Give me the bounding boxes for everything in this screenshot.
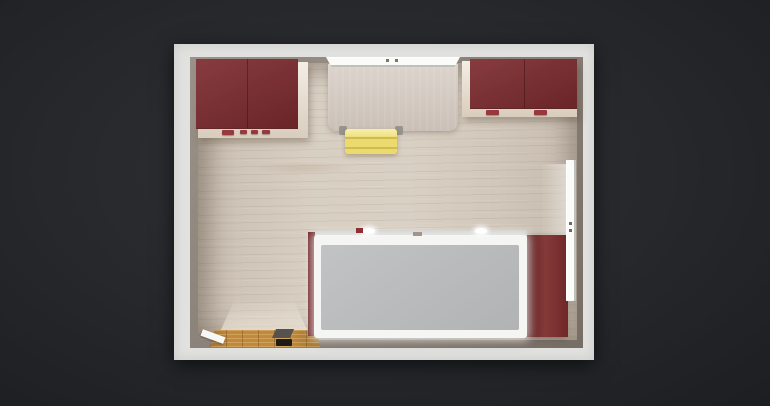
window-top[interactable] — [326, 57, 460, 67]
bed-accessory-small[interactable] — [413, 232, 422, 236]
cabinet-door-seam — [247, 59, 248, 128]
window-right[interactable] — [566, 160, 576, 301]
window-handle-icon — [386, 59, 389, 62]
bed-lamp-left[interactable] — [362, 228, 375, 234]
cabinet-handle[interactable] — [486, 110, 499, 115]
bed-accessory-red[interactable] — [356, 228, 363, 233]
wardrobe-bottom-right[interactable] — [527, 235, 568, 337]
cabinet-handle[interactable] — [251, 130, 258, 134]
bed-lamp-right[interactable] — [475, 228, 487, 234]
cabinet-handle[interactable] — [222, 130, 234, 135]
chair-yellow[interactable] — [345, 129, 397, 154]
window-handle-icon — [569, 229, 572, 232]
window-handle-icon — [569, 222, 572, 225]
door-threshold[interactable] — [210, 330, 320, 347]
cabinet-top-left[interactable] — [196, 59, 298, 129]
cabinet-handle[interactable] — [240, 130, 247, 134]
cabinet-door-seam — [524, 59, 525, 108]
desk[interactable] — [328, 64, 458, 131]
cabinet-handle[interactable] — [534, 110, 547, 115]
cabinet-top-right[interactable] — [470, 59, 577, 109]
cabinet-handle[interactable] — [262, 130, 270, 134]
door-mat[interactable] — [276, 339, 292, 346]
window-handle-icon — [395, 59, 398, 62]
bed-mattress[interactable] — [321, 245, 519, 330]
planner-viewport — [0, 0, 770, 406]
